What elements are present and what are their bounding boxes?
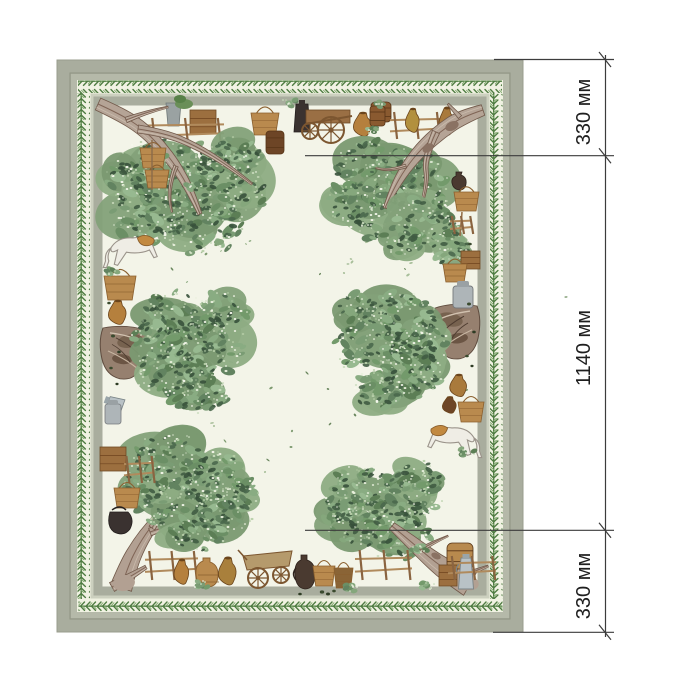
svg-text:330 мм: 330 мм bbox=[573, 79, 595, 145]
svg-text:1140 мм: 1140 мм bbox=[573, 310, 595, 386]
svg-text:330 мм: 330 мм bbox=[573, 553, 595, 619]
